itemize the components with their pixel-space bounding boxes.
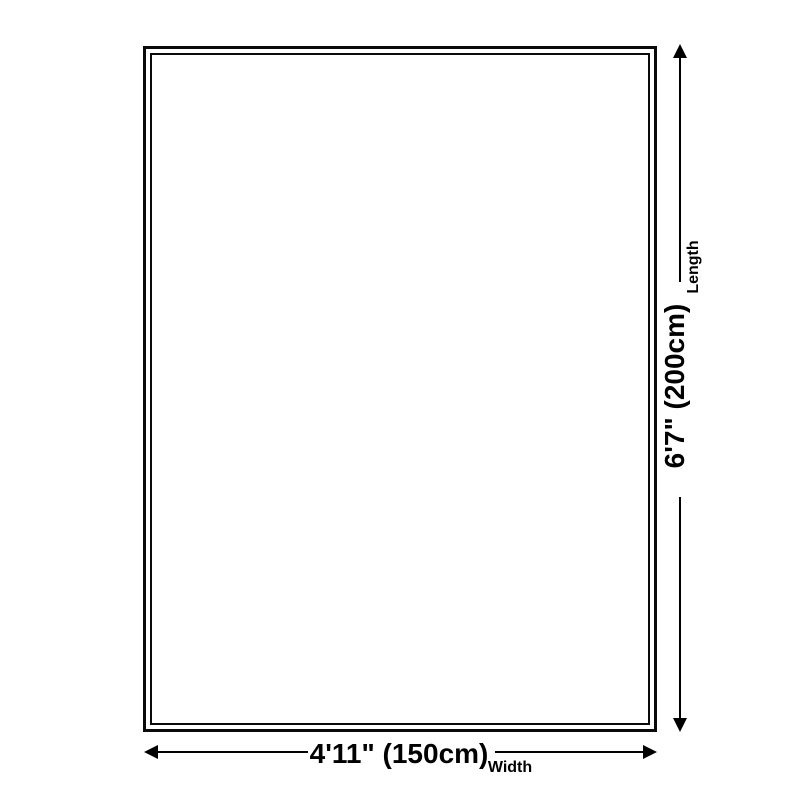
length-dimension-line-top	[679, 57, 681, 282]
arrow-down-icon	[673, 718, 687, 732]
length-dimension-line-bottom	[679, 497, 681, 719]
size-diagram: Length 6'7" (200cm) 4'11" (150cm) Width	[0, 0, 800, 800]
length-axis-label: Length	[685, 240, 703, 293]
product-outline-inner-border	[150, 53, 650, 725]
width-value: 4'11" (150cm)	[310, 738, 489, 770]
product-outline	[143, 46, 657, 732]
arrow-up-icon	[673, 44, 687, 58]
width-dimension-line-right	[495, 751, 643, 753]
arrow-left-icon	[144, 745, 158, 759]
width-dimension-line-left	[158, 751, 308, 753]
length-value: 6'7" (200cm)	[659, 304, 691, 469]
arrow-right-icon	[643, 745, 657, 759]
width-axis-label: Width	[488, 759, 532, 777]
